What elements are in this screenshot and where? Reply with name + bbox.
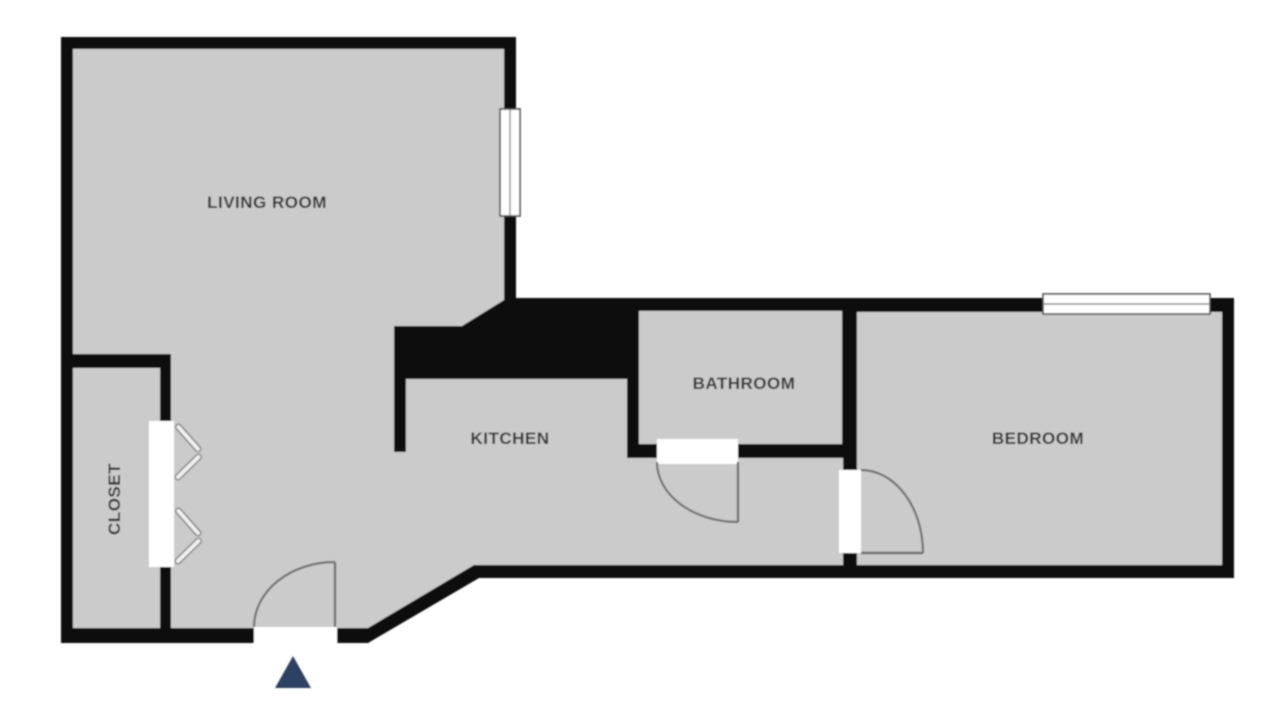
svg-text:BEDROOM: BEDROOM (992, 429, 1084, 448)
svg-text:BATHROOM: BATHROOM (693, 374, 796, 393)
svg-text:KITCHEN: KITCHEN (470, 429, 549, 448)
svg-text:CLOSET: CLOSET (105, 463, 124, 535)
svg-text:LIVING ROOM: LIVING ROOM (207, 193, 327, 212)
